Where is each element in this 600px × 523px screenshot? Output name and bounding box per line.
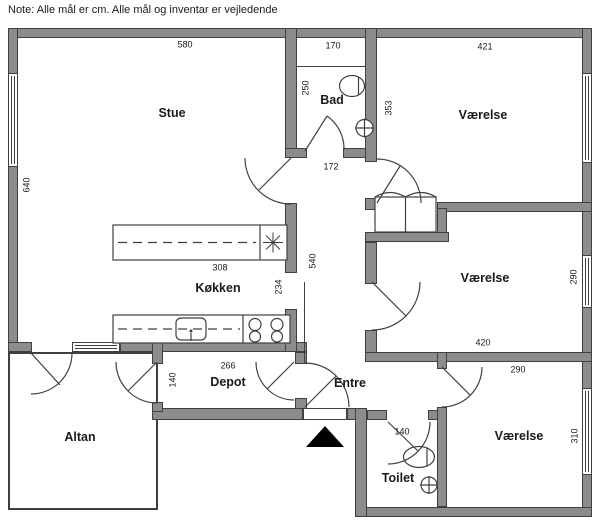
dim-vaerelse-btm-width: 290 <box>510 366 525 375</box>
door-swing-bad <box>305 116 344 151</box>
dim-hall-width: 172 <box>323 163 338 172</box>
room-label-stue: Stue <box>158 107 185 120</box>
room-label-koekken: Køkken <box>195 282 240 295</box>
entrance-arrow <box>306 426 344 447</box>
room-label-vaerelse-top: Værelse <box>459 109 508 122</box>
dim-counter-top: 308 <box>212 264 227 273</box>
room-label-bad: Bad <box>320 94 344 107</box>
door-swing-depot-altan <box>116 362 157 403</box>
dim-vaerelse-btm-height: 310 <box>571 428 580 443</box>
dim-hall-length: 540 <box>309 253 318 268</box>
cooker-hood-star-icon <box>263 233 283 253</box>
dim-stue-height: 640 <box>23 177 32 192</box>
kitchen-counter-bottom <box>113 315 290 343</box>
room-label-entre: Entre <box>334 377 366 390</box>
room-label-vaerelse-btm: Værelse <box>495 430 544 443</box>
dim-stue-width: 580 <box>177 41 192 50</box>
room-label-vaerelse-mid: Værelse <box>461 272 510 285</box>
dim-vaerelse-top-width: 421 <box>477 43 492 52</box>
door-swing-stue-hall <box>245 158 291 204</box>
toilet-sink-icon <box>420 476 438 494</box>
bad-sink-icon <box>355 119 374 138</box>
door-swing-depot-entre <box>256 362 294 400</box>
floor-plan: Note: Alle mål er cm. Alle mål og invent… <box>0 0 600 523</box>
room-label-depot: Depot <box>210 376 245 389</box>
room-label-altan: Altan <box>64 431 95 444</box>
dim-vaerelse-mid-height: 290 <box>570 269 579 284</box>
fixtures-layer <box>0 0 600 523</box>
closet-wardrobe <box>375 193 436 233</box>
dim-koekken-depth: 234 <box>275 279 284 294</box>
dim-vaerelse-mid-width: 420 <box>475 339 490 348</box>
kitchen-counter-top <box>113 225 287 260</box>
dim-toilet-width: 140 <box>394 428 409 437</box>
room-label-toilet: Toilet <box>382 472 414 485</box>
dim-bad-width: 170 <box>325 42 340 51</box>
door-swing-stue-altan <box>31 353 72 394</box>
dim-counter-bottom: 266 <box>220 362 235 371</box>
door-swing-vaerelse-mid <box>372 282 420 330</box>
dim-bad-height: 250 <box>302 80 311 95</box>
dim-depot-height: 140 <box>169 372 178 387</box>
door-swing-vaerelse-btm <box>442 367 482 407</box>
door-swing-vaerelse-top <box>377 159 421 203</box>
dim-vaerelse-top-height: 353 <box>385 100 394 115</box>
